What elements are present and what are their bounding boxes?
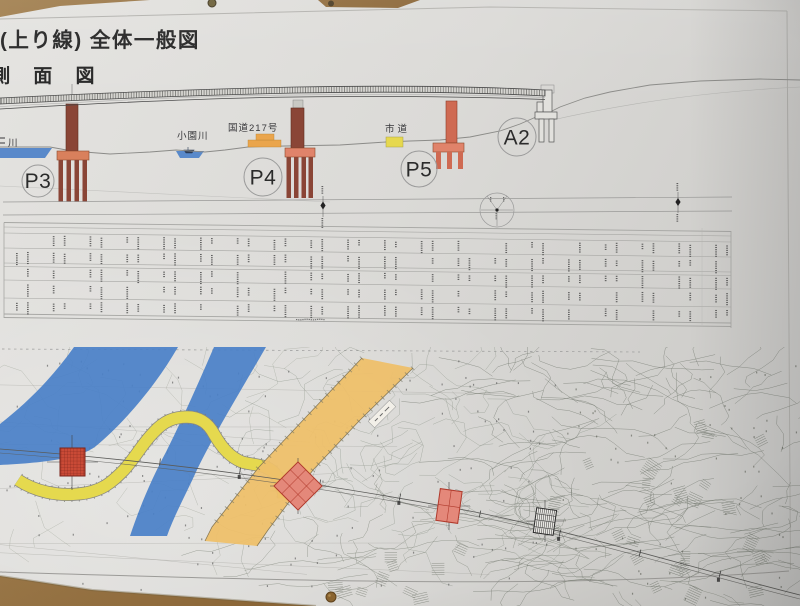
pin-bottom-highlight [328, 594, 331, 597]
micro-text-marks [16, 183, 728, 321]
pier-p3-structure [57, 84, 89, 202]
station-marker [320, 196, 325, 217]
boat-icon [184, 147, 194, 153]
river-water-left [0, 148, 52, 158]
pin-hole-top [328, 1, 334, 7]
river-left-label: 川 [8, 138, 19, 149]
pier-label-p3: P3 [25, 170, 52, 193]
cadastral-and-contour-lines [0, 286, 800, 606]
photo-of-drawing: (上り線) 全体一般図 側 面 図 川 小園川 国 [0, 0, 800, 606]
drawing-title: (上り線) 全体一般図 [0, 28, 200, 52]
curve-data-symbol [480, 193, 514, 227]
pin-bottom [326, 592, 336, 602]
pin-top [208, 0, 216, 7]
slope-line [548, 87, 800, 121]
plan-view-map [0, 286, 800, 606]
river-left-partial-glyph [0, 138, 5, 143]
pier-p5-structure [433, 101, 464, 169]
route217-road-shape [248, 134, 281, 147]
elevation-view-title: 側 面 図 [0, 65, 104, 87]
pier-label-p5: P5 [406, 159, 433, 182]
city-road-label: 市道 [385, 123, 410, 135]
route217-label: 国道217号 [228, 122, 278, 134]
profile-band [3, 192, 732, 227]
pier-label-p4: P4 [250, 167, 277, 190]
pier-p4-structure [285, 100, 315, 198]
river-band-main [0, 347, 178, 465]
station-marker [675, 192, 680, 213]
bridge-general-plan-drawing: (上り線) 全体一般図 側 面 図 川 小園川 国 [0, 0, 800, 606]
elevation-view: 川 小園川 国道217号 市道 [0, 79, 800, 202]
kozono-river-label: 小園川 [177, 131, 209, 142]
bridge-deck [0, 86, 545, 109]
city-road-shape [386, 137, 403, 147]
pier-label-a2: A2 [504, 127, 531, 150]
profile-data-table [4, 223, 731, 329]
